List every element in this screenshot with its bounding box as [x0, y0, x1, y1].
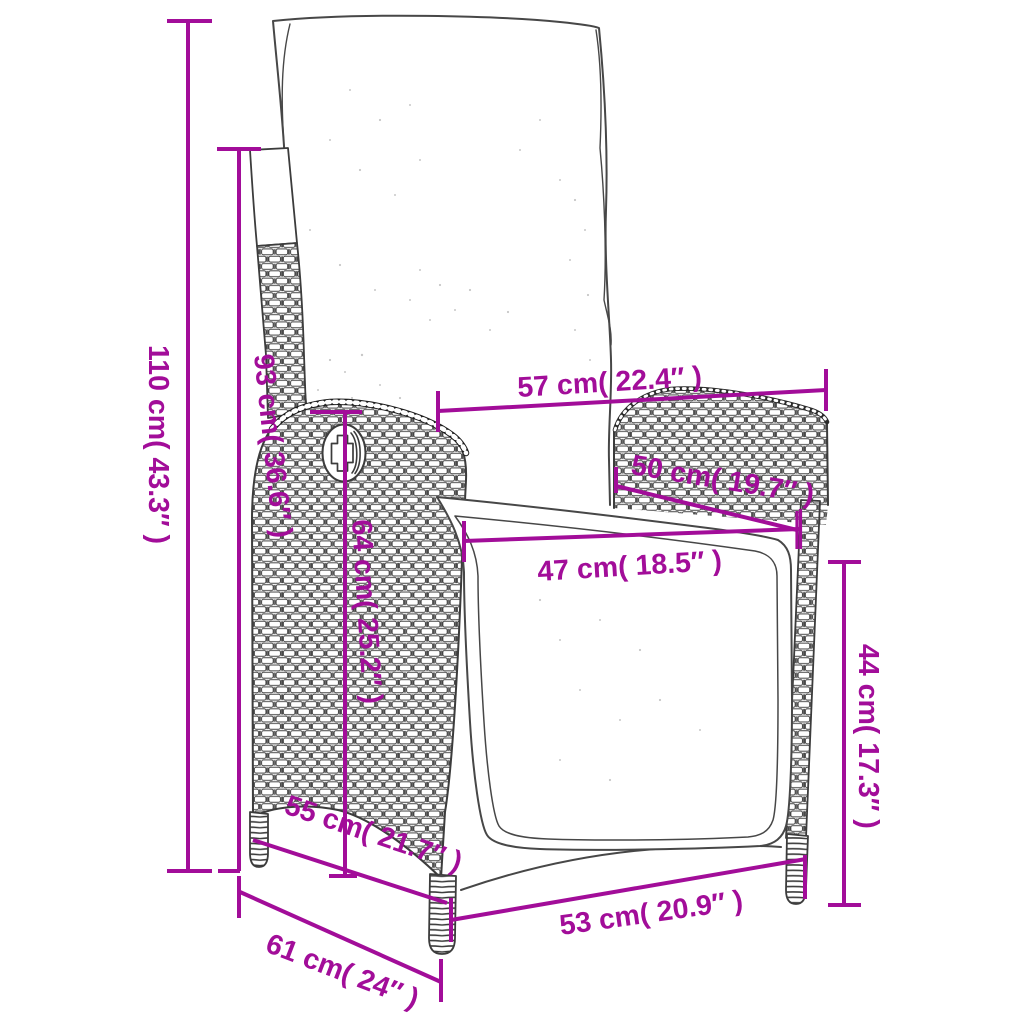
- svg-text:44 cm( 17.3″ ): 44 cm( 17.3″ ): [852, 644, 884, 829]
- svg-text:110 cm( 43.3″ ): 110 cm( 43.3″ ): [142, 345, 174, 544]
